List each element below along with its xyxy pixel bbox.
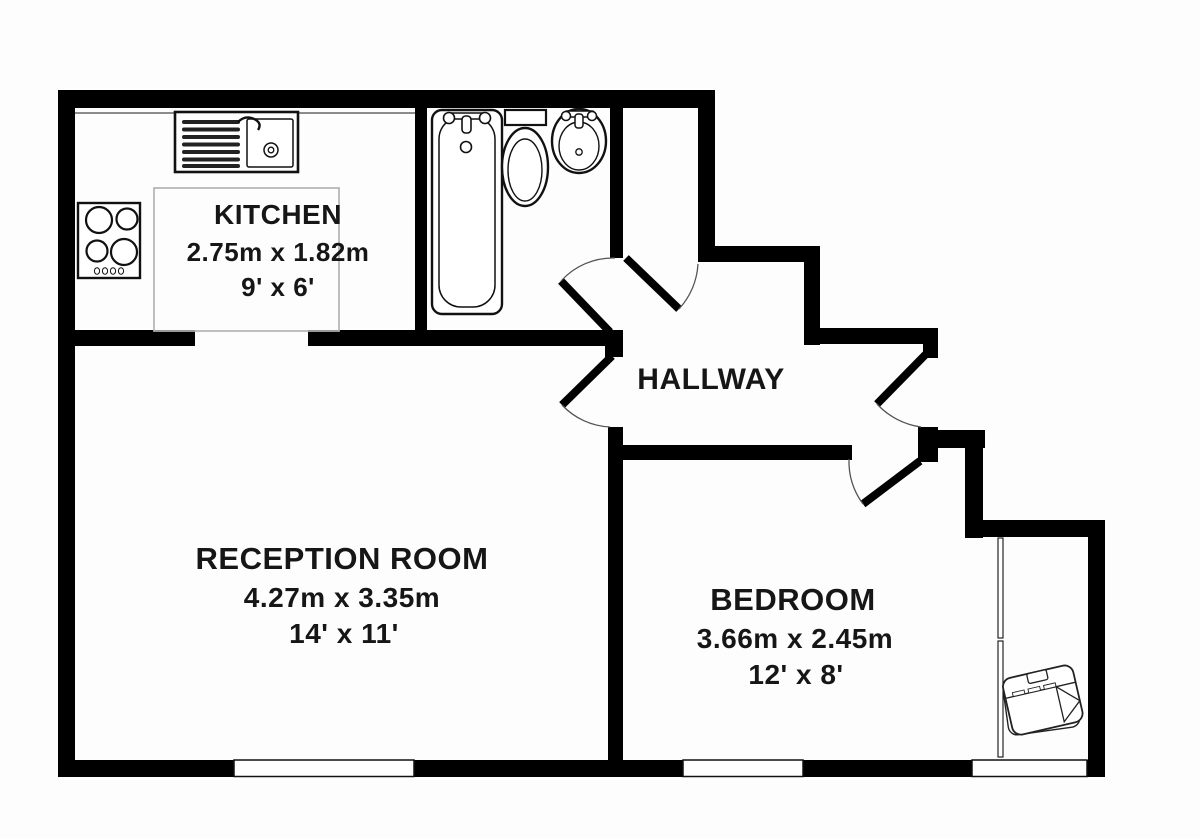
- reception-door-arc: [562, 405, 610, 427]
- wall-reception-bedroom-divider: [608, 427, 623, 777]
- entrance-door-leaf: [877, 351, 929, 404]
- sofa-icon: [997, 664, 1086, 742]
- wall-kitchen-bottom-left: [58, 330, 195, 346]
- floorplan-drawing: KITCHEN 2.75m x 1.82m 9' x 6' HALLWAY RE…: [0, 0, 1200, 839]
- kitchen-label: KITCHEN: [214, 199, 342, 230]
- kitchen-dim-imperial: 9' x 6': [241, 272, 315, 302]
- wall-step2-horizontal: [804, 328, 938, 344]
- wall-bottom-3: [803, 760, 972, 777]
- reception-window: [234, 760, 414, 777]
- wall-bedroom-top: [623, 445, 852, 460]
- wall-bottom-2: [414, 760, 683, 777]
- reception-door-leaf: [562, 356, 612, 405]
- reception-label: RECEPTION ROOM: [196, 541, 489, 576]
- entrance-door-arc: [877, 404, 921, 427]
- bathroom-door-leaf: [561, 281, 610, 332]
- bedroom-door-arc: [849, 459, 863, 504]
- reception-dim-imperial: 14' x 11': [289, 618, 399, 649]
- floorplan-page: KITCHEN 2.75m x 1.82m 9' x 6' HALLWAY RE…: [0, 0, 1200, 839]
- bedroom-door-leaf: [863, 461, 920, 504]
- basin-icon: [552, 109, 606, 173]
- walls: [58, 90, 1105, 777]
- wall-right-exterior: [1088, 537, 1105, 777]
- wall-bedroom-step-horizontal: [930, 430, 985, 448]
- wall-alcove-top: [965, 520, 1105, 537]
- bathroom-fixtures: [432, 109, 606, 314]
- wall-bottom-1: [58, 760, 234, 777]
- wall-right-upper: [698, 90, 715, 262]
- kitchen-dim-metric: 2.75m x 1.82m: [187, 237, 370, 267]
- reception-dim-metric: 4.27m x 3.35m: [244, 582, 440, 613]
- room-labels: KITCHEN 2.75m x 1.82m 9' x 6' HALLWAY RE…: [187, 199, 894, 690]
- cupboard-door-arc: [679, 264, 698, 309]
- cupboard-door-leaf: [626, 258, 679, 309]
- wall-bottom-4: [1087, 760, 1105, 777]
- kitchen-sink-icon: [175, 112, 298, 172]
- wall-bathroom-right: [610, 106, 623, 258]
- wall-step1-horizontal: [698, 246, 820, 262]
- alcove-window: [972, 760, 1087, 777]
- hob-icon: [78, 203, 140, 278]
- bathroom-door-arc: [561, 258, 615, 281]
- toilet-icon: [502, 110, 548, 206]
- bath-icon: [432, 110, 502, 314]
- bedroom-dim-metric: 3.66m x 2.45m: [697, 623, 893, 654]
- hallway-label: HALLWAY: [637, 363, 784, 396]
- alcove-side-glazing-upper: [998, 538, 1003, 638]
- alcove-side-glazing-lower: [998, 641, 1003, 757]
- wall-left-exterior: [58, 90, 75, 777]
- bedroom-label: BEDROOM: [710, 582, 875, 617]
- wall-top-exterior: [58, 90, 715, 108]
- wall-kitchen-bath-divider: [415, 106, 427, 332]
- wall-kitchen-bath-bottom: [308, 330, 623, 346]
- bedroom-dim-imperial: 12' x 8': [748, 659, 843, 690]
- bedroom-window: [683, 760, 803, 777]
